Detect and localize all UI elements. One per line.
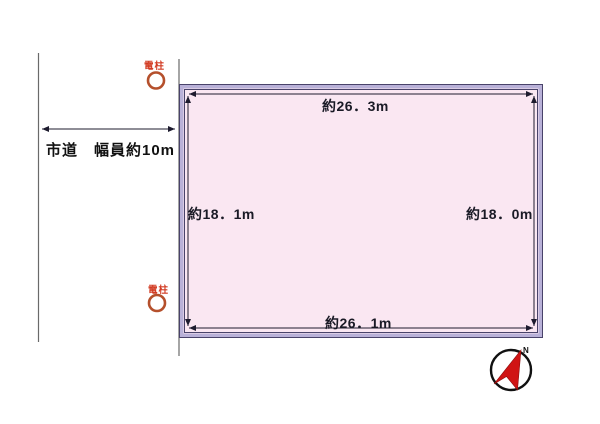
compass-rose	[491, 350, 531, 390]
utility-pole-bottom-label: 電柱	[148, 282, 169, 296]
utility-pole-bottom-symbol	[149, 295, 165, 311]
utility-pole-top-symbol	[148, 73, 164, 89]
left-dimension-label: 約18．1m	[188, 204, 255, 224]
utility-pole-top-label: 電柱	[144, 58, 165, 72]
right-dimension-label: 約18．0m	[466, 204, 533, 224]
road-label: 市道 幅員約10m	[46, 139, 175, 160]
top-dimension-label: 約26．3m	[322, 96, 389, 116]
site-plan: 約26．3m 約18．1m 約18．0m 約26．1m 市道 幅員約10m 電柱…	[0, 0, 600, 424]
bottom-dimension-label: 約26．1m	[325, 313, 392, 333]
compass-north-label: N	[523, 346, 529, 355]
